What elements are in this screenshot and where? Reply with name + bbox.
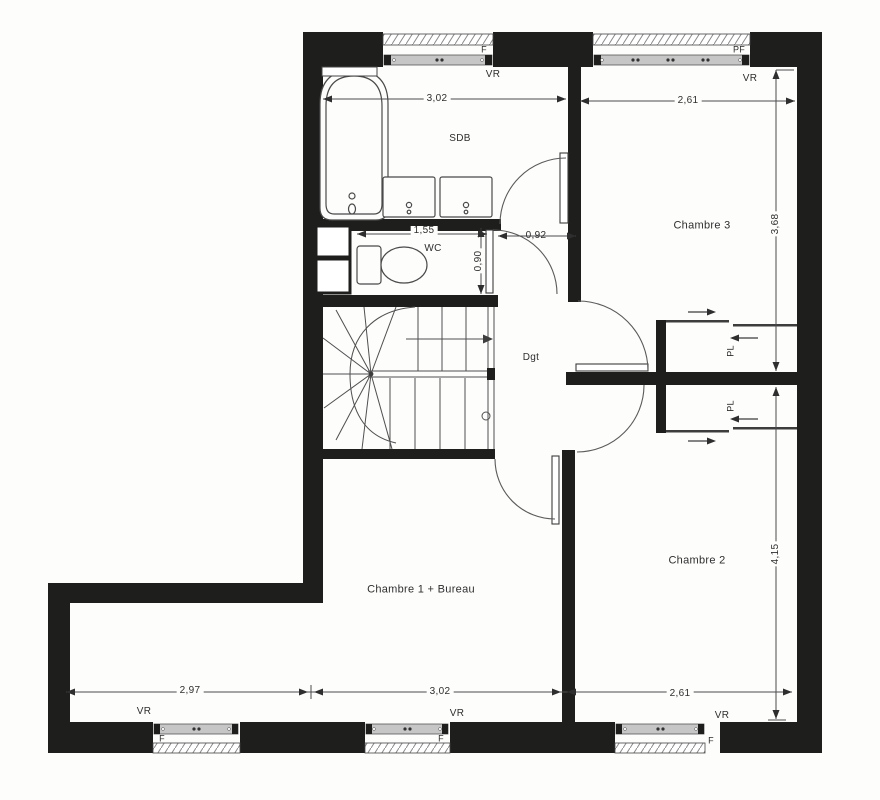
- window-label-f-bottom-2: F: [438, 735, 444, 744]
- shutter-label-vr-bottom-1: VR: [137, 707, 152, 717]
- dim-bottom-middle: 3,02: [427, 687, 454, 697]
- dim-bottom-left: 2,97: [177, 686, 204, 696]
- dim-wc-width: 1,55: [411, 226, 438, 236]
- wc-door-leaf: [486, 230, 493, 293]
- dim-right-upper: 3,68: [771, 212, 781, 237]
- chambre3-door-leaf: [576, 364, 648, 371]
- plan-linework: [0, 0, 880, 800]
- room-label-chambre3: Chambre 3: [673, 221, 730, 232]
- bottom-window-3: [615, 724, 705, 753]
- bottom-window-1: [153, 724, 240, 753]
- chambre1-door-swing: [495, 459, 555, 519]
- top-window-f: [383, 34, 493, 65]
- dim-sdb-door: 0,92: [523, 231, 550, 241]
- top-window-pf: [593, 34, 750, 65]
- toilet: [357, 246, 427, 284]
- window-label-f-top: F: [481, 46, 487, 55]
- dim-right-lower: 4,15: [771, 542, 781, 567]
- sdb-door-swing: [500, 158, 566, 224]
- floor-plan-page: SDB WC Dgt Chambre 3 Chambre 2 Chambre 1…: [0, 0, 880, 800]
- shutter-label-vr-bottom-3: VR: [715, 711, 730, 721]
- closet-label-top: PL: [727, 345, 736, 357]
- room-label-dgt: Dgt: [523, 353, 539, 363]
- double-sink: [383, 177, 492, 217]
- chambre3-door-swing: [578, 301, 648, 371]
- window-label-f-bottom-3: F: [708, 737, 714, 746]
- closet-label-bottom: PL: [727, 400, 736, 412]
- dim-wc-door: 0,90: [474, 249, 484, 274]
- chambre1-door-leaf: [552, 456, 559, 524]
- shutter-label-vr-bottom-2: VR: [450, 709, 465, 719]
- chambre2-door-swing: [577, 385, 644, 452]
- room-label-wc: WC: [424, 244, 441, 254]
- room-label-chambre2: Chambre 2: [668, 556, 725, 567]
- shutter-label-vr-top-right: VR: [743, 74, 758, 84]
- dim-bottom-right: 2,61: [667, 689, 694, 699]
- staircase: [323, 307, 495, 449]
- room-label-chambre1-bureau: Chambre 1 + Bureau: [367, 585, 475, 596]
- dim-top-right: 2,61: [675, 96, 702, 106]
- exterior-walls: [48, 32, 822, 753]
- window-label-pf-top: PF: [733, 46, 745, 55]
- sdb-door-leaf: [560, 153, 568, 223]
- bathtub: [320, 67, 388, 220]
- wc-cabinet: [316, 226, 350, 293]
- room-label-sdb: SDB: [449, 134, 470, 144]
- dimension-lines: [66, 70, 795, 720]
- dim-top-left: 3,02: [424, 94, 451, 104]
- window-label-f-bottom-1: F: [159, 735, 165, 744]
- shutter-label-vr-top-left: VR: [486, 70, 501, 80]
